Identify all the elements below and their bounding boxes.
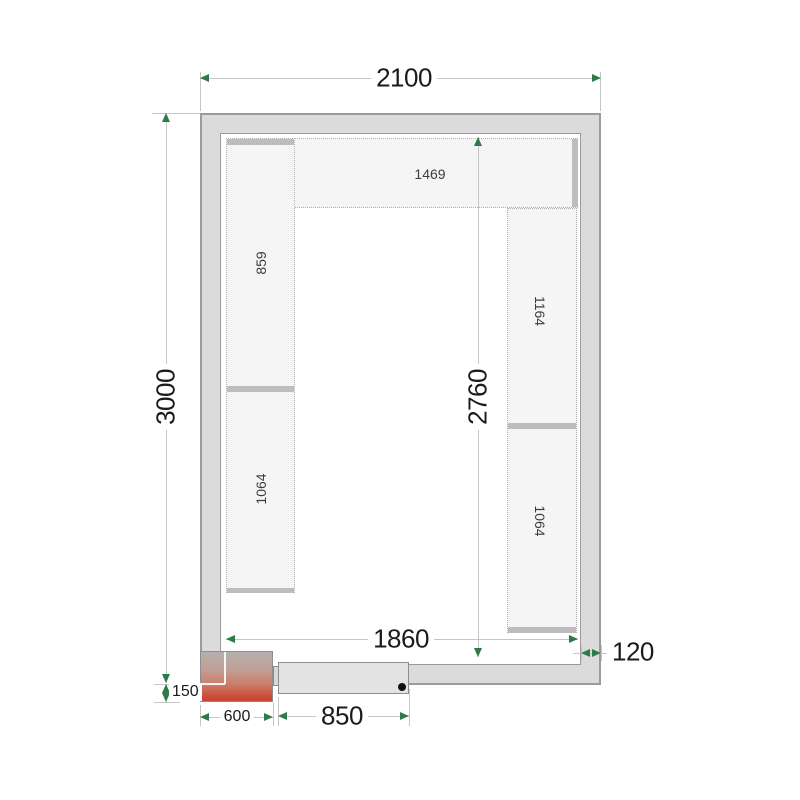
dim-arrow-left	[200, 713, 209, 721]
dim-arrow-right	[569, 635, 578, 643]
shelf-label-top: 1469	[414, 166, 445, 182]
dim-arrow-left	[200, 74, 209, 82]
shelf-label-right-upper: 1164	[532, 296, 548, 326]
shelf-left-column	[226, 138, 295, 593]
wall-corner-line-horizontal	[201, 683, 225, 685]
extension-line-600-right	[273, 703, 274, 726]
extension-line-wall-outer	[601, 645, 602, 661]
shelf-edge-strip-top-right	[572, 139, 578, 207]
shelf-end-strip-right	[508, 627, 576, 633]
shelf-edge-strip-top-left	[227, 139, 294, 145]
dim-arrow-left	[581, 649, 590, 657]
dim-arrow-right	[592, 649, 601, 657]
dim-text-inner-width: 1860	[368, 624, 434, 655]
shelf-divider-left	[227, 386, 294, 392]
dim-arrow-up	[474, 137, 482, 146]
shelf-label-right-lower: 1064	[532, 505, 548, 536]
dim-text-wall-thickness: 120	[607, 637, 659, 668]
dim-arrow-right	[264, 713, 273, 721]
dim-text-corner-unit: 600	[221, 708, 254, 726]
shelf-divider-right	[508, 423, 576, 429]
door-handle-dot	[398, 683, 406, 691]
dim-arrow-left	[226, 635, 235, 643]
extension-line-outer-height-top	[152, 113, 200, 114]
dim-arrow-left	[278, 712, 287, 720]
dim-arrow-right	[400, 712, 409, 720]
wall-corner-line-vertical	[224, 652, 226, 684]
door-panel	[278, 662, 409, 694]
dim-text-inner-height: 2760	[463, 364, 494, 430]
shelf-label-left-upper: 859	[253, 251, 269, 274]
extension-line-850-right	[409, 689, 410, 726]
dim-text-corner-offset: 150	[169, 683, 202, 701]
corner-heater-unit	[200, 651, 273, 702]
dim-arrow-down	[162, 674, 170, 683]
dim-arrow-right	[592, 74, 601, 82]
shelf-end-strip-left	[227, 588, 294, 593]
shelf-right-column	[507, 208, 577, 633]
dim-arrow-down	[474, 648, 482, 657]
dim-text-outer-height: 3000	[151, 364, 182, 430]
dim-text-outer-width: 2100	[371, 63, 437, 94]
floor-plan-drawing: 1469 859 1064 1164 1064 2100 3000 2760 1…	[0, 0, 800, 800]
dim-text-door: 850	[316, 701, 368, 732]
extension-line-offset-bottom	[154, 702, 180, 703]
dim-arrow-up	[162, 113, 170, 122]
shelf-label-left-lower: 1064	[253, 473, 269, 504]
